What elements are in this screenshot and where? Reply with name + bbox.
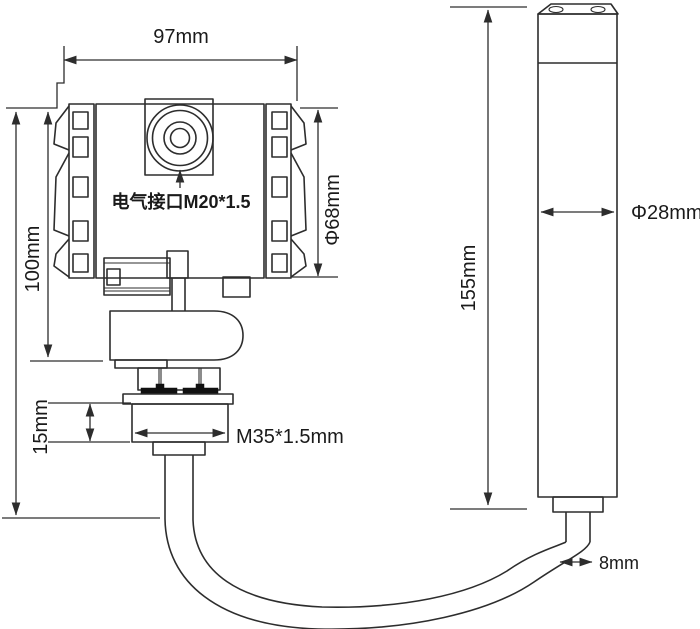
dim-housing-height-label: 100mm xyxy=(22,226,44,293)
dimensions: 97mm 100mm 15mm Φ68mm xyxy=(2,7,700,573)
down-pipe xyxy=(165,455,193,520)
gasket-strip xyxy=(141,388,177,394)
electrical-connector-circles xyxy=(147,105,213,171)
dim-probe-diameter-label: Φ28mm xyxy=(631,202,700,224)
connector-ring-outer xyxy=(147,105,213,171)
connector-hole xyxy=(171,129,190,148)
dim-overall-height xyxy=(2,112,160,518)
terminal-bracket xyxy=(104,251,250,311)
dim-housing-height: 100mm xyxy=(22,112,103,361)
fin-profile xyxy=(291,106,306,277)
dim-thread-spec: M35*1.5mm xyxy=(135,426,344,448)
probe-collar xyxy=(553,497,603,512)
dim-thread-height: 15mm xyxy=(30,399,131,455)
dim-probe-length-label: 155mm xyxy=(458,245,480,312)
probe-body xyxy=(538,14,617,497)
sensor-capsule xyxy=(110,311,243,360)
gasket-strip xyxy=(183,388,218,394)
cooling-fins-left xyxy=(54,104,94,278)
extension-line xyxy=(6,46,64,108)
cable xyxy=(165,519,590,629)
cable-outer-edge xyxy=(165,519,590,629)
hex-nut xyxy=(138,368,220,394)
lower-collar xyxy=(153,442,205,455)
cooling-fins-right xyxy=(266,104,306,278)
dim-thread-height-label: 15mm xyxy=(30,399,52,455)
dim-probe-diameter: Φ28mm xyxy=(541,202,700,224)
fin xyxy=(73,177,88,197)
fin xyxy=(73,254,88,272)
dimension-drawing: 97mm 100mm 15mm Φ68mm xyxy=(0,0,700,629)
fin xyxy=(272,177,287,197)
probe-top-hole xyxy=(591,7,605,13)
electrical-interface-label: 电气接口M20*1.5 xyxy=(111,191,250,212)
probe-top-face xyxy=(538,4,618,14)
connector-ring-inner xyxy=(164,122,196,154)
fin xyxy=(73,221,88,241)
right-block xyxy=(223,277,250,297)
fin xyxy=(272,221,287,241)
capsule-step xyxy=(115,360,167,368)
fin xyxy=(272,112,287,129)
thread-body-m35 xyxy=(132,404,228,442)
dim-housing-diameter: Φ68mm xyxy=(292,108,344,277)
nut-body xyxy=(138,368,220,390)
bracket-block xyxy=(107,269,120,285)
dim-housing-width-label: 97mm xyxy=(153,26,209,48)
dim-thread-spec-label: M35*1.5mm xyxy=(236,426,344,448)
fin-profile xyxy=(54,106,69,277)
dim-housing-width: 97mm xyxy=(6,26,297,108)
mounting-flange xyxy=(123,394,233,404)
probe xyxy=(538,4,618,542)
dim-cable-diameter-label: 8mm xyxy=(599,553,639,573)
fin xyxy=(272,254,287,272)
connector-ring xyxy=(153,111,208,166)
probe-top-hole xyxy=(549,7,563,13)
dim-housing-diameter-label: Φ68mm xyxy=(322,174,344,246)
callout-electrical-interface: 电气接口M20*1.5 xyxy=(111,170,250,212)
fin xyxy=(73,112,88,129)
dim-probe-length: 155mm xyxy=(450,7,527,509)
drawing-canvas: 97mm 100mm 15mm Φ68mm xyxy=(0,0,700,629)
process-connection xyxy=(104,251,250,520)
fin xyxy=(272,137,287,157)
housing-body xyxy=(96,104,264,278)
dim-cable-diameter: 8mm xyxy=(560,553,639,573)
fin xyxy=(73,137,88,157)
cable-inner-edge xyxy=(193,520,566,607)
